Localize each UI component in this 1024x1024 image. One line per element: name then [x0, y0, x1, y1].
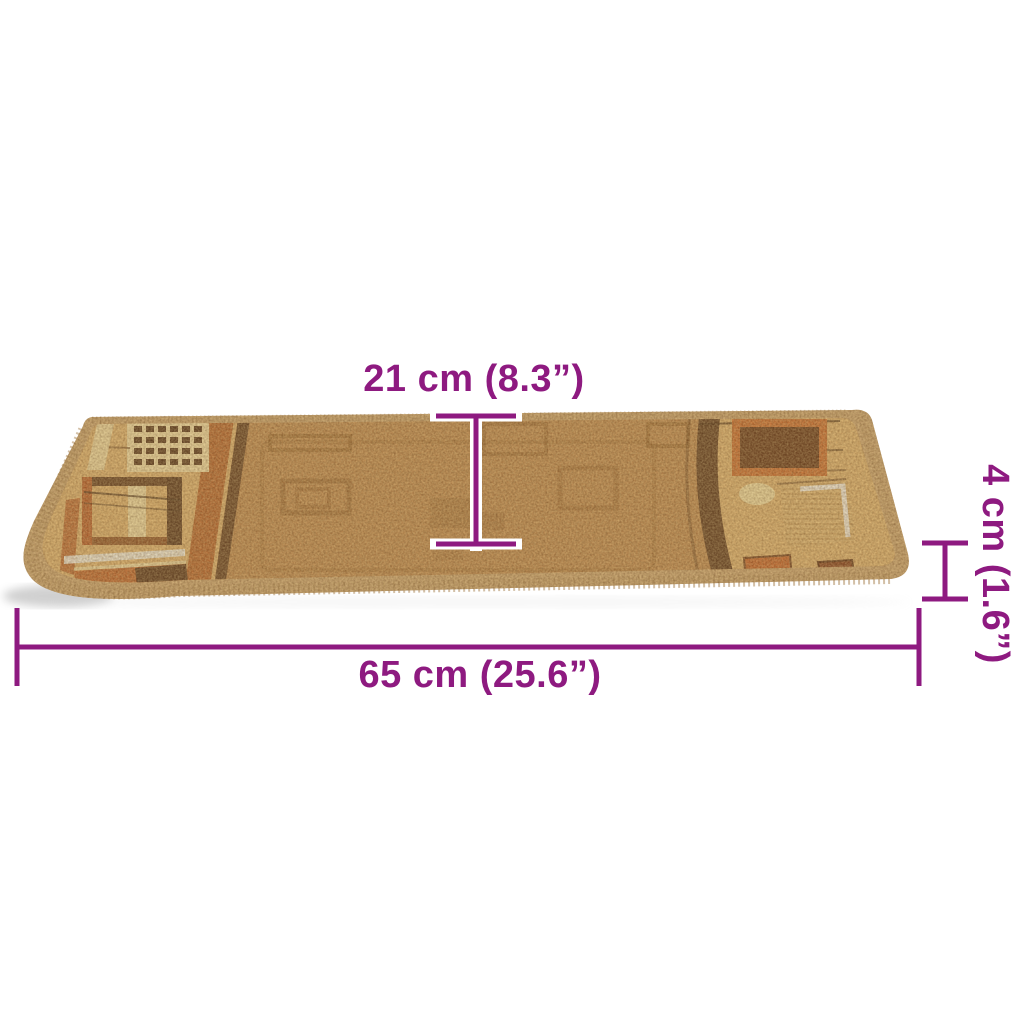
carpet-texture-noise [23, 410, 908, 599]
stair-mat-illustration [0, 0, 1024, 1024]
thickness-dimension-label: 4 cm (1.6”) [972, 414, 1016, 714]
width-dimension-label: 65 cm (25.6”) [280, 654, 680, 698]
depth-dimension-label: 21 cm (8.3”) [274, 358, 674, 402]
product-dimension-image: 21 cm (8.3”) 4 cm (1.6”) 65 cm (25.6”) [0, 0, 1024, 1024]
thickness-dimension-marker [922, 543, 968, 599]
